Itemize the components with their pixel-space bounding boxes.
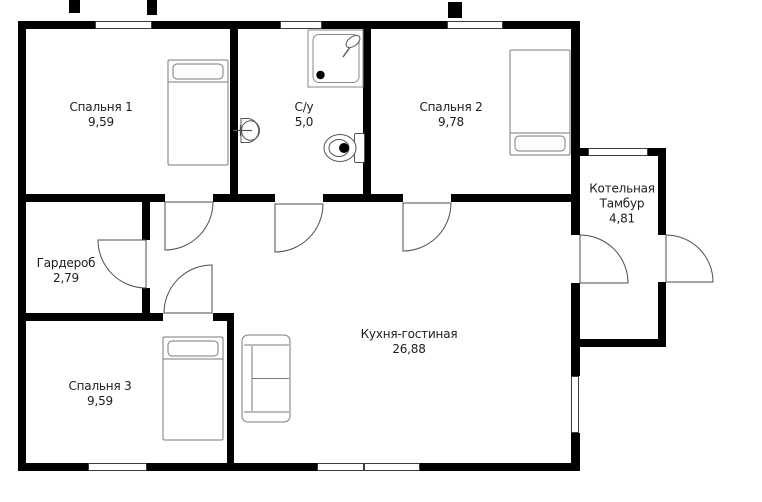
wall (571, 148, 588, 156)
window-icon (318, 464, 364, 471)
wall (503, 21, 580, 29)
doors (98, 202, 713, 313)
vent-stub-icon (147, 0, 157, 15)
wall (230, 29, 238, 194)
wall (213, 313, 234, 321)
floor-plan-drawing (0, 0, 762, 502)
wall (26, 194, 165, 202)
wall (142, 202, 150, 240)
wall (323, 194, 403, 202)
window-icon (589, 149, 648, 156)
floor-plan: Спальня 1 9,59 С/у 5,0 Спальня 2 9,78 Ко… (0, 0, 762, 502)
bed-icon (168, 60, 228, 165)
bed-icon (510, 50, 570, 155)
wall (451, 194, 572, 202)
wall (571, 433, 580, 471)
wall (152, 21, 280, 29)
door-swing-icon (98, 240, 146, 288)
shower-icon (308, 30, 363, 87)
toilet-icon (324, 134, 365, 163)
wall (658, 148, 666, 235)
door-swing-icon (164, 265, 212, 313)
door-swing-icon (275, 204, 323, 252)
window-icon (96, 22, 152, 29)
wall (420, 463, 580, 471)
window-icon (572, 377, 579, 433)
wall (363, 29, 371, 194)
wall (571, 283, 580, 376)
bed-icon (163, 337, 223, 440)
wall (26, 313, 163, 321)
wall (658, 282, 666, 347)
vent-stubs (69, 0, 462, 18)
door-swing-icon (165, 202, 213, 250)
wall (142, 288, 150, 313)
wall (18, 21, 26, 471)
door-swing-icon (403, 203, 451, 251)
door-swing-icon (666, 235, 713, 282)
wall (213, 194, 275, 202)
wall (322, 21, 447, 29)
door-swing-icon (580, 235, 628, 283)
vent-stub-icon (69, 0, 80, 13)
sofa-icon (242, 335, 290, 422)
wall (227, 321, 234, 463)
window-icon (448, 22, 503, 29)
window-icon (281, 22, 322, 29)
window-icon (365, 464, 420, 471)
wall (571, 21, 580, 235)
wall (18, 21, 95, 29)
wall (147, 463, 317, 471)
vent-stub-icon (448, 2, 462, 18)
window-icon (89, 464, 147, 471)
wall (571, 339, 666, 347)
wall (18, 463, 88, 471)
